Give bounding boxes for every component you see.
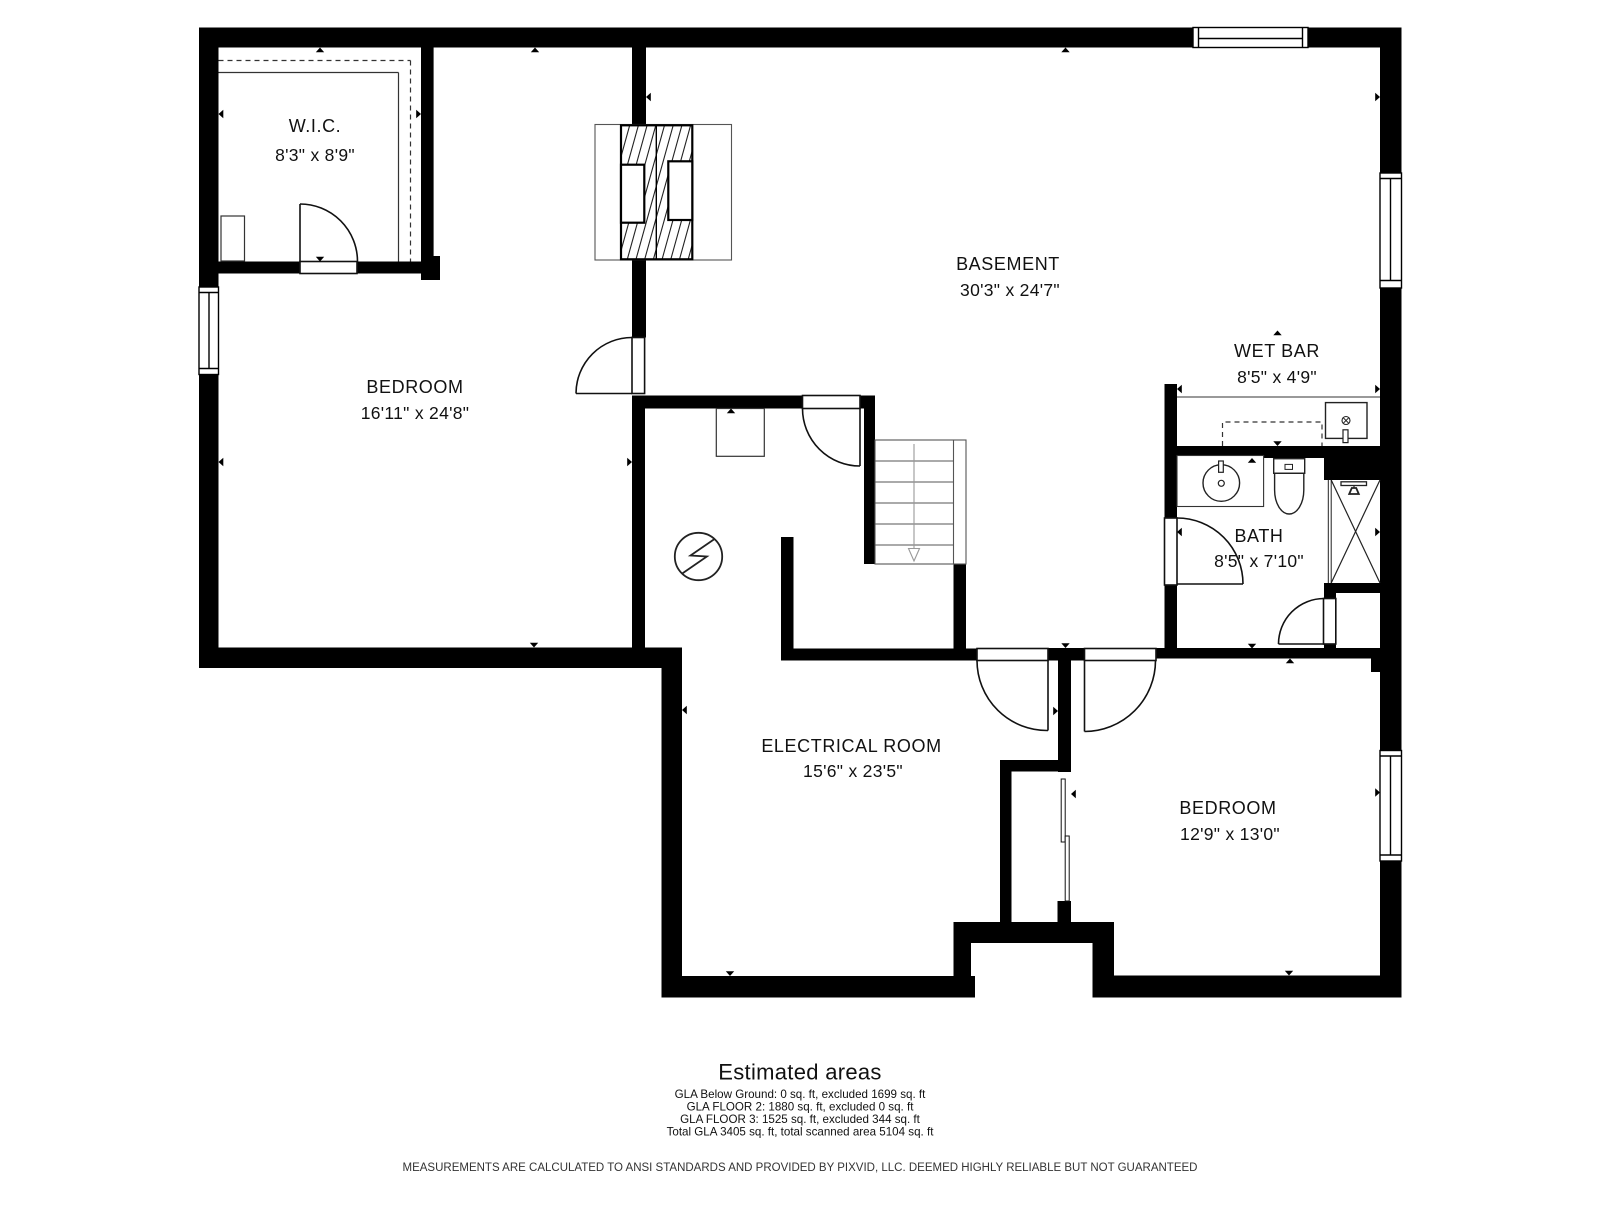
svg-text:BATH: BATH [1234, 526, 1283, 546]
svg-text:GLA Below Ground: 0 sq. ft, ex: GLA Below Ground: 0 sq. ft, excluded 169… [675, 1088, 926, 1101]
svg-text:MEASUREMENTS ARE CALCULATED TO: MEASUREMENTS ARE CALCULATED TO ANSI STAN… [403, 1162, 1198, 1174]
svg-text:BEDROOM: BEDROOM [1179, 798, 1276, 818]
svg-text:8'5" x 7'10": 8'5" x 7'10" [1214, 551, 1304, 571]
svg-text:GLA FLOOR 3: 1525 sq. ft, excl: GLA FLOOR 3: 1525 sq. ft, excluded 344 s… [680, 1113, 921, 1126]
svg-text:BASEMENT: BASEMENT [956, 254, 1060, 274]
svg-text:8'5" x 4'9": 8'5" x 4'9" [1237, 367, 1317, 387]
svg-text:30'3" x 24'7": 30'3" x 24'7" [960, 280, 1060, 300]
svg-text:12'9" x 13'0": 12'9" x 13'0" [1180, 824, 1280, 844]
svg-text:8'3" x 8'9": 8'3" x 8'9" [275, 145, 355, 165]
svg-text:Estimated areas: Estimated areas [718, 1060, 881, 1085]
svg-text:BEDROOM: BEDROOM [366, 377, 463, 397]
svg-text:Total GLA 3405 sq. ft, total s: Total GLA 3405 sq. ft, total scanned are… [667, 1126, 935, 1139]
svg-text:15'6" x 23'5": 15'6" x 23'5" [803, 761, 903, 781]
svg-text:16'11" x 24'8": 16'11" x 24'8" [361, 403, 470, 423]
svg-text:ELECTRICAL ROOM: ELECTRICAL ROOM [761, 736, 941, 756]
svg-text:GLA FLOOR 2: 1880 sq. ft, excl: GLA FLOOR 2: 1880 sq. ft, excluded 0 sq.… [687, 1101, 915, 1114]
svg-text:WET BAR: WET BAR [1234, 341, 1320, 361]
svg-text:W.I.C.: W.I.C. [289, 116, 342, 136]
